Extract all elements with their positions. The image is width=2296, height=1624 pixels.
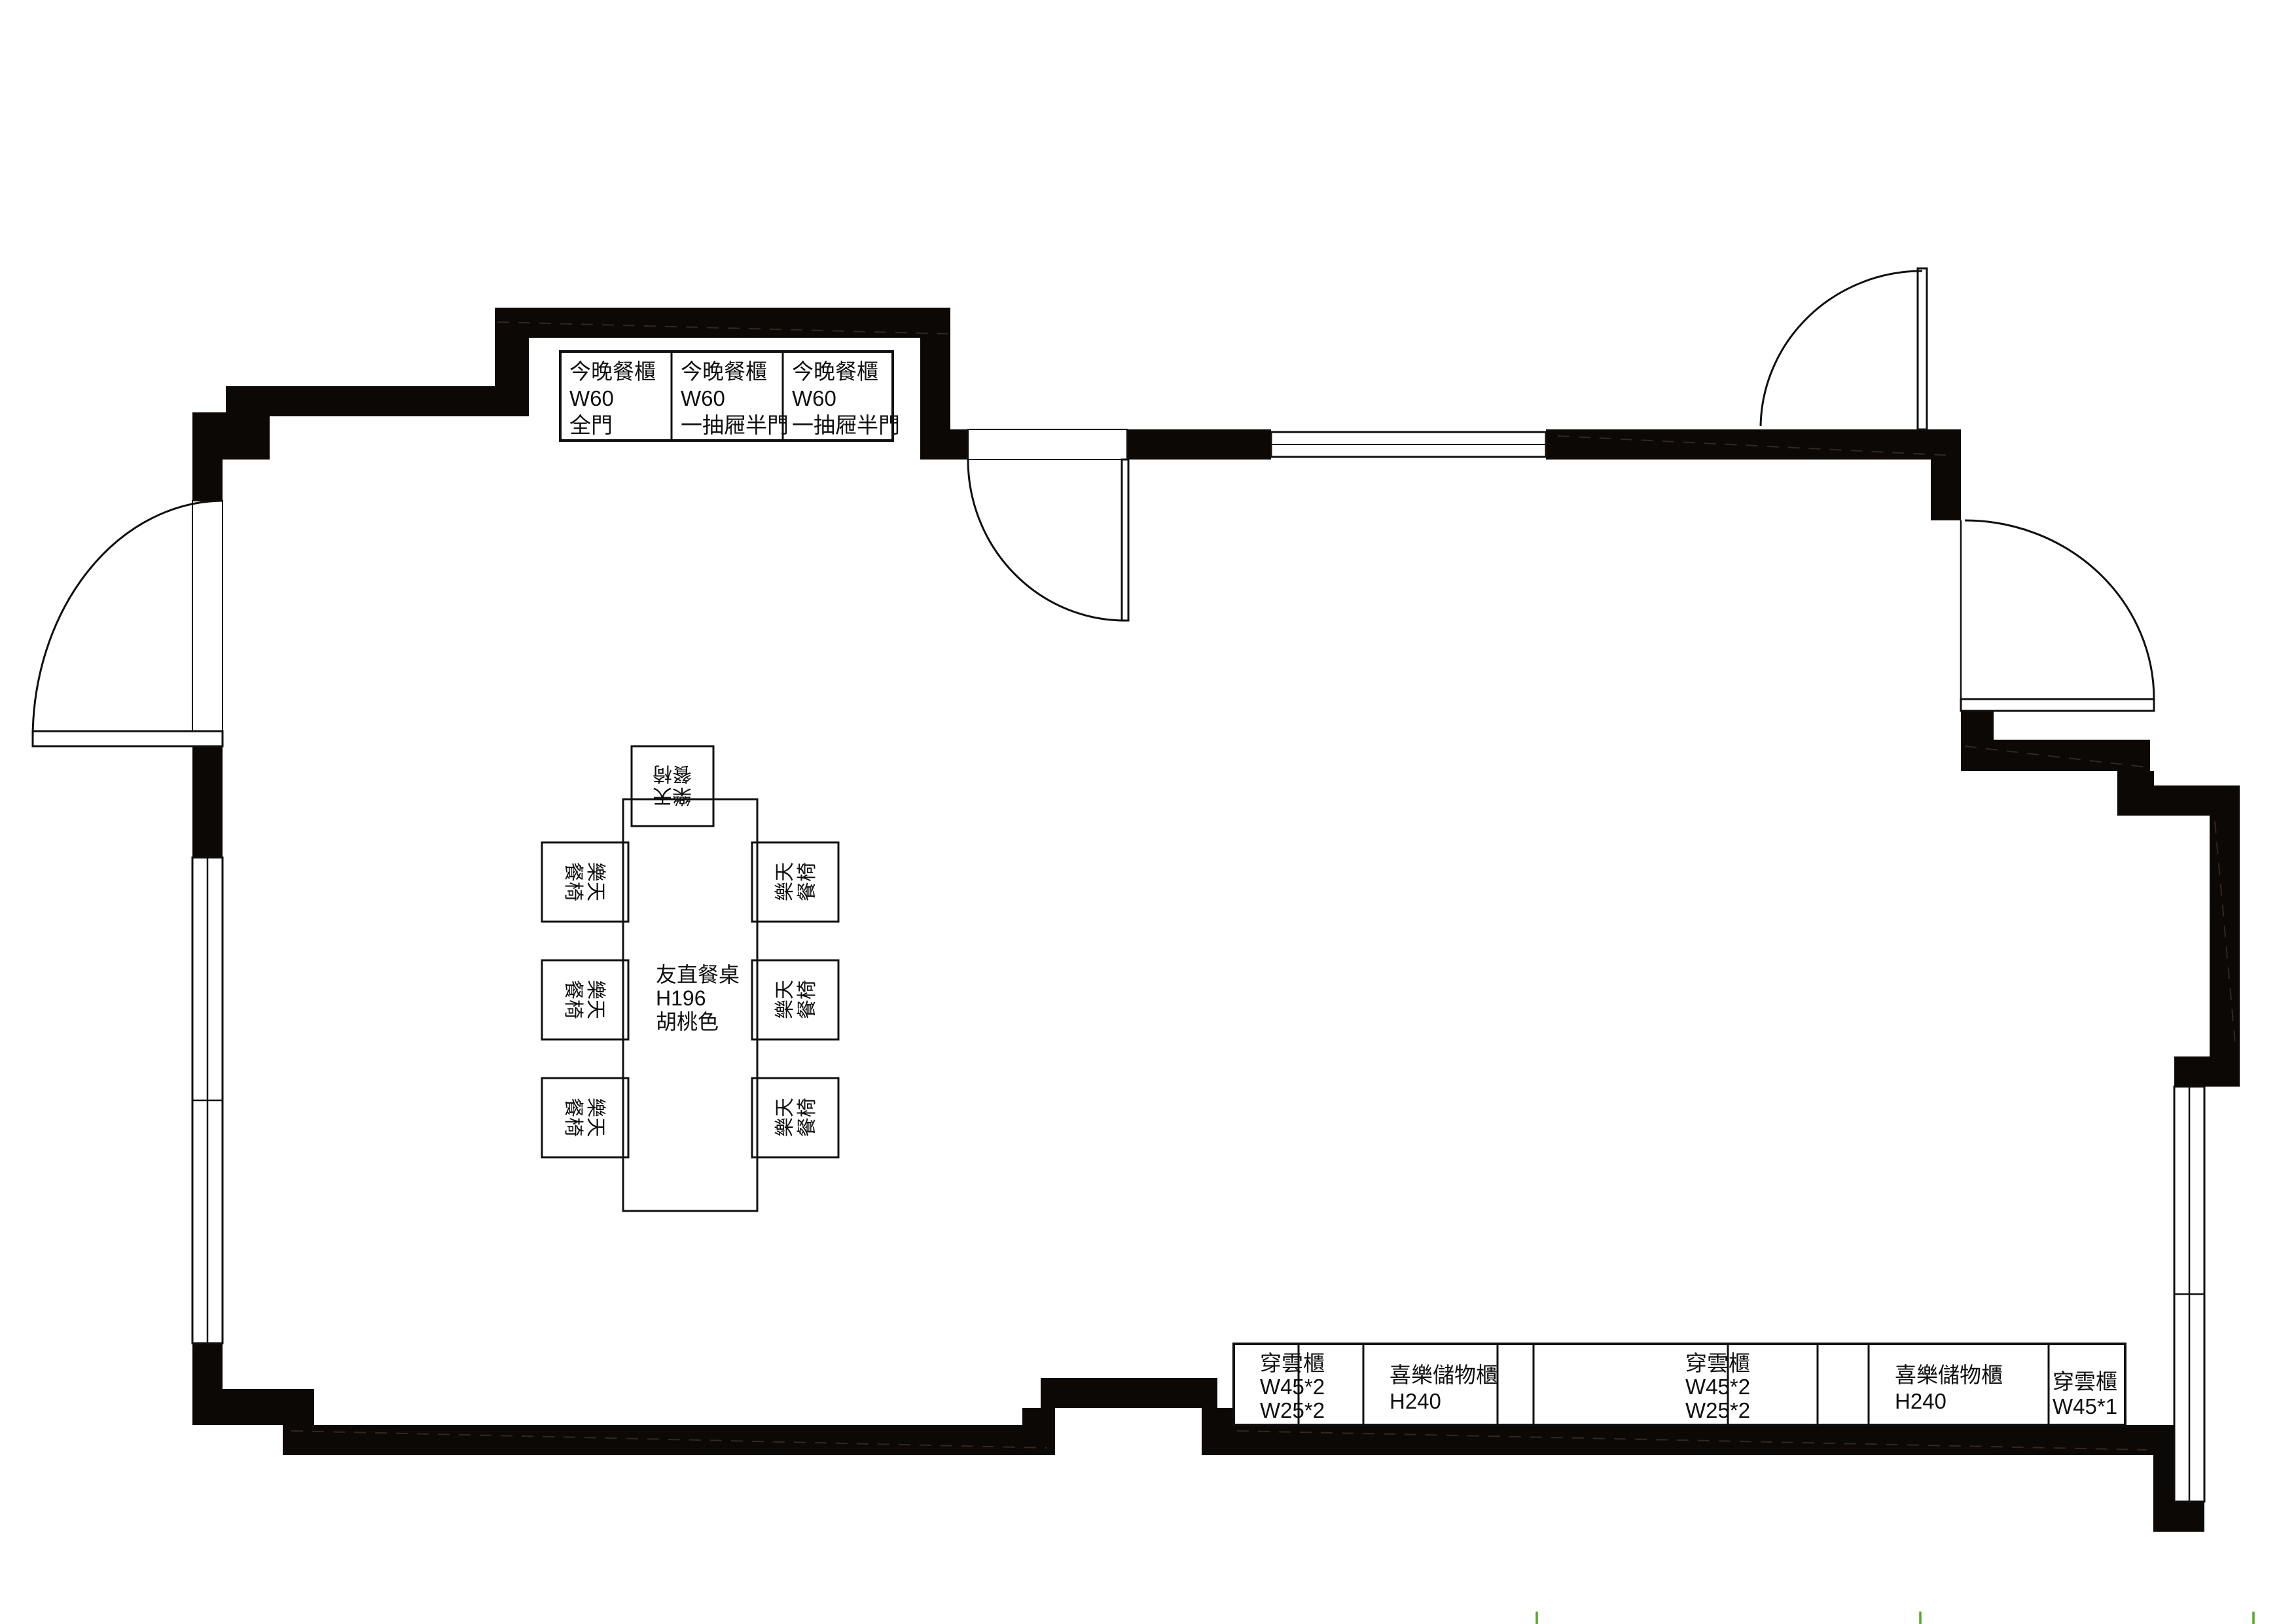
- door-swing-arc: [1965, 520, 2154, 699]
- cabinet-bottom-2-line1: 喜樂儲物櫃: [1390, 1363, 1498, 1387]
- cabinet-bottom-1-line2: W45*2: [1260, 1375, 1325, 1399]
- cabinet-bottom-2-line2: H240: [1390, 1389, 1441, 1413]
- table-label-line3: 胡桃色: [656, 1010, 719, 1034]
- chair-label-line2: 餐椅: [653, 763, 692, 784]
- door-swing-arc: [1761, 271, 1922, 426]
- chair-label-line2: 餐椅: [562, 1098, 584, 1137]
- chair-label-line1: 樂天: [774, 1098, 796, 1137]
- chair-right-3-label: 樂天 餐椅: [774, 1098, 818, 1137]
- windows: [192, 432, 2204, 1502]
- chair-label-line2: 餐椅: [562, 862, 584, 901]
- chair-label-line1: 樂天: [774, 980, 796, 1019]
- chair-label-line1: 樂天: [584, 862, 606, 901]
- cabinet-bottom-3-line1: 穿雲櫃: [1685, 1351, 1750, 1375]
- cabinet-top-3-line2: W60: [792, 386, 836, 410]
- cabinet-bottom-1-label: 穿雲櫃 W45*2 W25*2: [1260, 1351, 1325, 1422]
- chair-label-line1: 樂天: [584, 980, 606, 1019]
- chair-label-line2: 餐椅: [797, 1098, 818, 1137]
- cabinet-top-1-line3: 全門: [569, 413, 613, 437]
- cabinet-top-2-line2: W60: [681, 386, 725, 410]
- chair-label-line1: 樂天: [774, 862, 796, 901]
- chair-label-line1: 樂天: [584, 1098, 606, 1137]
- door-swing-arc: [968, 460, 1125, 621]
- cabinet-top-1-line2: W60: [569, 386, 614, 410]
- chair-label-line1: 樂天: [653, 785, 692, 806]
- chair-label-line2: 餐椅: [562, 980, 584, 1019]
- cabinet-bottom-5-line2: W45*1: [2053, 1394, 2117, 1418]
- door-left-exterior: [33, 501, 223, 746]
- cabinet-bottom-4-line2: H240: [1895, 1389, 1946, 1413]
- cabinet-bottom-4-line1: 喜樂儲物櫃: [1895, 1363, 2003, 1387]
- cabinet-top-3-line1: 今晚餐櫃: [792, 359, 878, 384]
- window-top: [1271, 432, 1546, 457]
- door-interior-top: [968, 429, 1128, 621]
- cabinet-bottom-1-line3: W25*2: [1260, 1398, 1325, 1422]
- cabinet-top-3-line3: 一抽屜半門: [792, 413, 900, 437]
- chair-left-2-label: 樂天 餐椅: [562, 980, 606, 1019]
- cabinet-top-2-line3: 一抽屜半門: [681, 413, 789, 437]
- door-top-right-exterior: [1761, 268, 1927, 429]
- cabinet-bottom-1-line1: 穿雲櫃: [1260, 1351, 1325, 1375]
- door-right-niche: [1961, 520, 2154, 711]
- chair-left-3-label: 樂天 餐椅: [562, 1098, 606, 1137]
- chair-label-line2: 餐椅: [797, 862, 818, 901]
- cabinet-bottom-3-line2: W45*2: [1685, 1375, 1750, 1399]
- cabinet-bottom-3-label: 穿雲櫃 W45*2 W25*2: [1685, 1351, 1750, 1422]
- window-right: [2174, 1087, 2204, 1502]
- cabinet-bottom-3-line3: W25*2: [1685, 1398, 1750, 1422]
- table-label-line1: 友直餐桌: [656, 963, 740, 986]
- floor-plan-drawing: 今晚餐櫃 W60 全門 今晚餐櫃 W60 一抽屜半門 今晚餐櫃 W60 一抽屜半…: [0, 0, 2296, 1624]
- window-left: [192, 857, 223, 1343]
- crop-ticks: [1537, 1612, 2253, 1624]
- cabinet-bottom-5-label: 穿雲櫃 W45*1: [2053, 1369, 2117, 1418]
- chair-right-2-label: 樂天 餐椅: [774, 980, 818, 1019]
- cabinet-bottom-5-line1: 穿雲櫃: [2053, 1369, 2117, 1394]
- chair-head-label: 樂天 餐椅: [653, 763, 692, 806]
- floor-plan-sheet: 今晚餐櫃 W60 全門 今晚餐櫃 W60 一抽屜半門 今晚餐櫃 W60 一抽屜半…: [0, 0, 2296, 1624]
- chair-left-1-label: 樂天 餐椅: [562, 862, 606, 901]
- chair-right-1-label: 樂天 餐椅: [774, 862, 818, 901]
- cabinet-top-1-line1: 今晚餐櫃: [569, 359, 656, 384]
- table-label-line2: H196: [656, 986, 706, 1010]
- chair-label-line2: 餐椅: [797, 980, 818, 1019]
- cabinet-top-2-line1: 今晚餐櫃: [681, 359, 767, 384]
